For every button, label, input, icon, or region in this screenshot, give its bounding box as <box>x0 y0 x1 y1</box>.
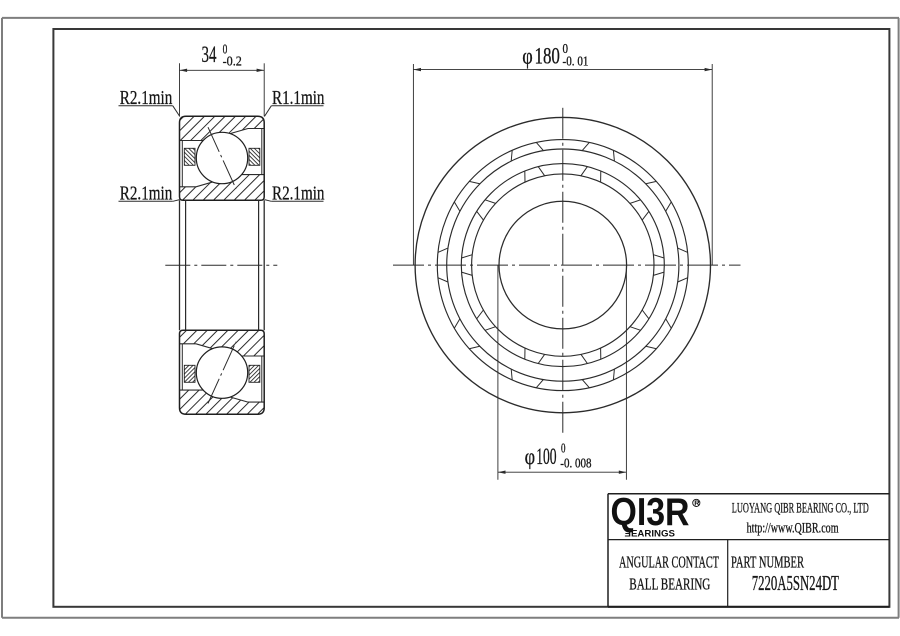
svg-text:-0.2: -0.2 <box>223 55 242 70</box>
svg-text:-0. 01: -0. 01 <box>563 53 589 68</box>
svg-text:φ: φ <box>525 444 536 470</box>
svg-text:180: 180 <box>535 44 560 70</box>
svg-text:R: R <box>694 499 700 508</box>
svg-text:7220A5SN24DT: 7220A5SN24DT <box>752 571 839 595</box>
svg-text:100: 100 <box>536 444 556 470</box>
svg-text:PART NUMBER: PART NUMBER <box>731 552 804 571</box>
svg-text:http://www.QIBR.com: http://www.QIBR.com <box>747 520 839 536</box>
svg-text:ANGULAR CONTACT: ANGULAR CONTACT <box>619 552 719 571</box>
svg-text:LUOYANG QIBR BEARING CO., LTD: LUOYANG QIBR BEARING CO., LTD <box>732 500 869 516</box>
svg-text:0: 0 <box>561 440 566 455</box>
svg-text:-0. 008: -0. 008 <box>560 455 591 470</box>
svg-text:φ: φ <box>522 44 533 70</box>
svg-text:34: 34 <box>202 42 217 67</box>
svg-text:BALL BEARING: BALL BEARING <box>629 574 710 593</box>
svg-text:ƎEARINGS: ƎEARINGS <box>625 528 676 539</box>
